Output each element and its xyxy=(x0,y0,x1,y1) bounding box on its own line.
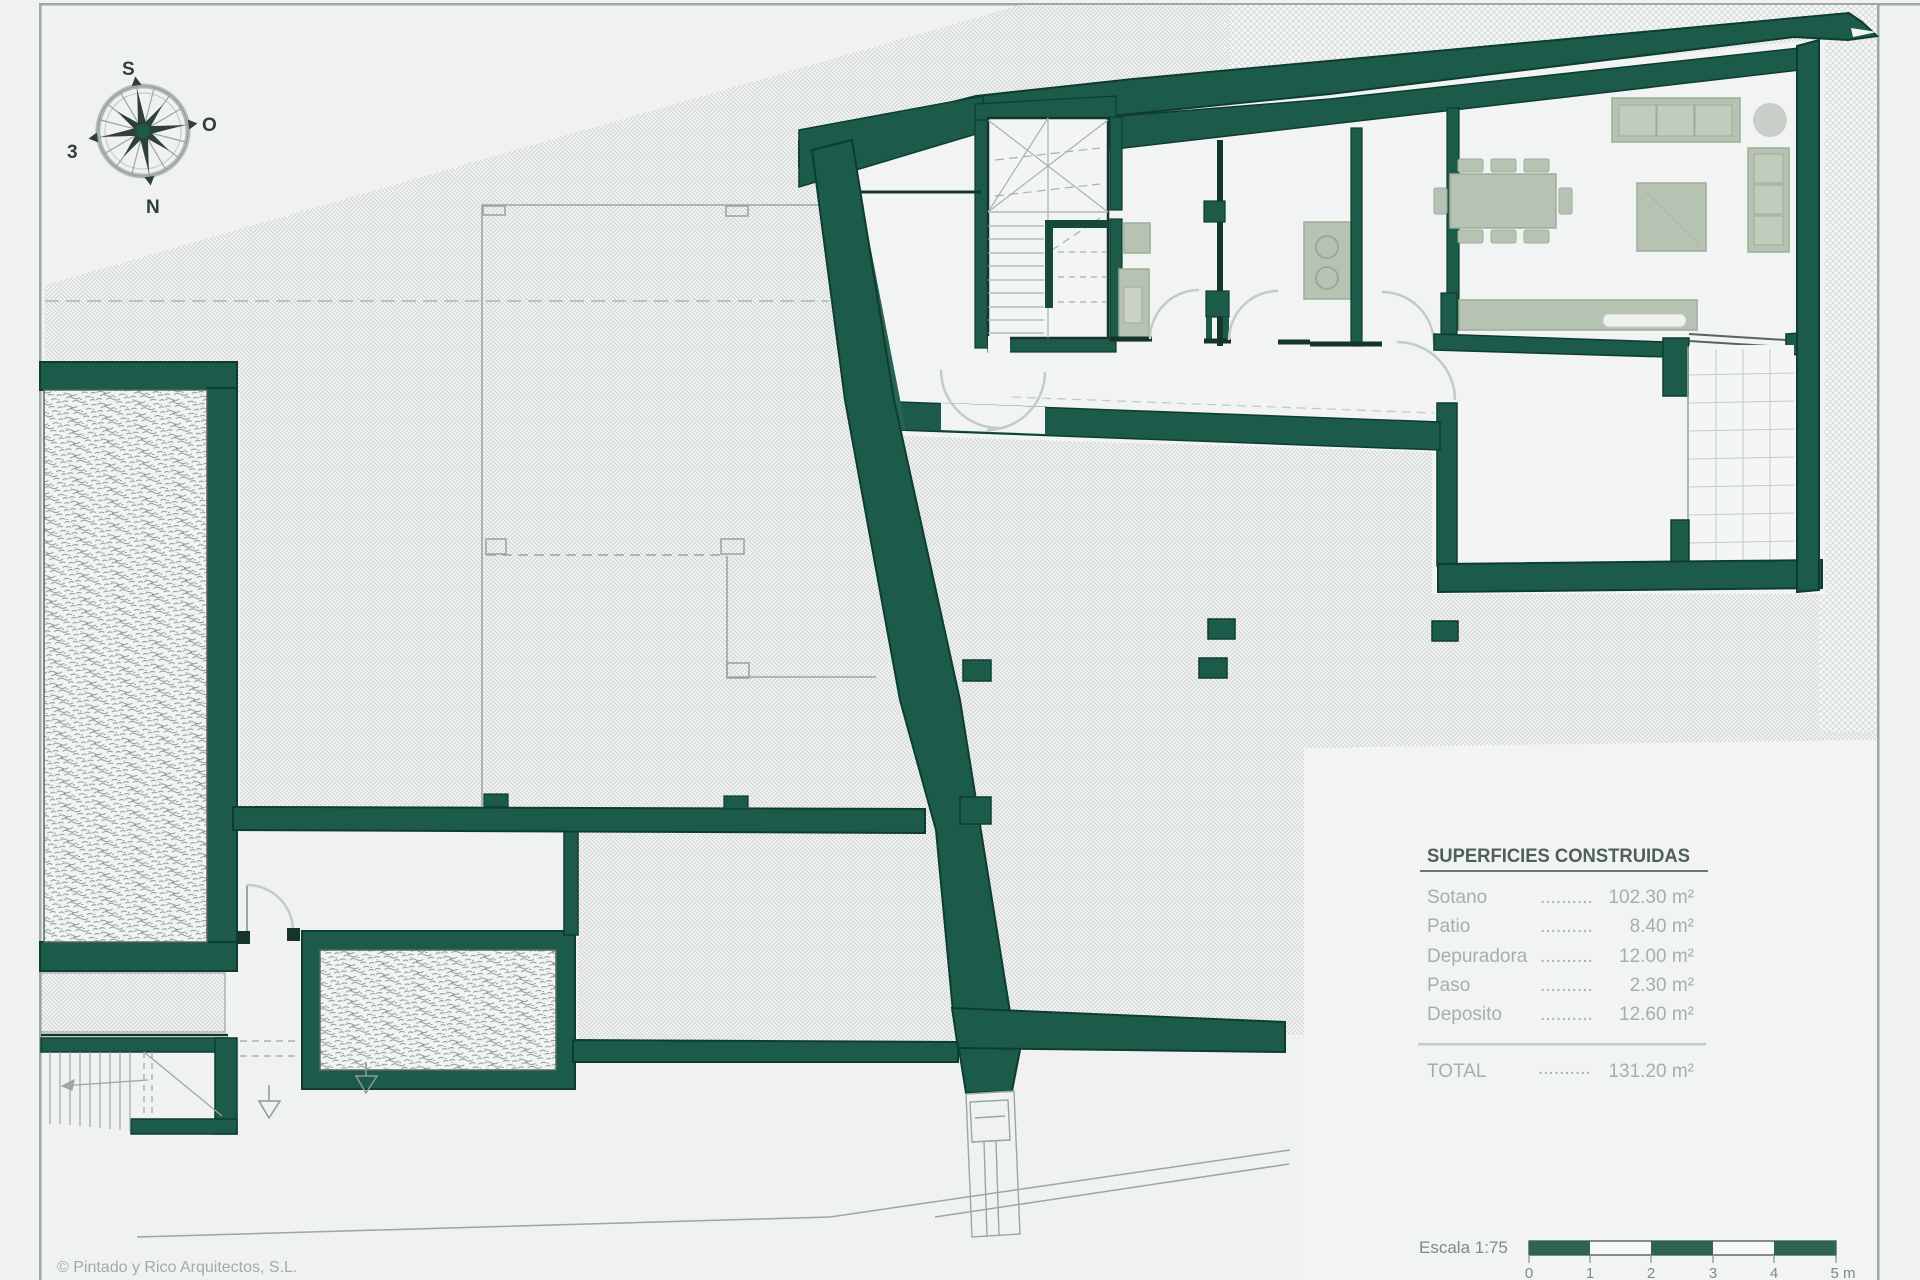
svg-text:Escala 1:75: Escala 1:75 xyxy=(1419,1238,1508,1257)
svg-text:12.60 m²: 12.60 m² xyxy=(1619,1004,1694,1025)
svg-text:Sotano: Sotano xyxy=(1427,887,1487,908)
svg-text:8.40 m²: 8.40 m² xyxy=(1630,916,1694,937)
svg-text:Patio: Patio xyxy=(1427,916,1470,937)
svg-text:3: 3 xyxy=(67,142,78,163)
svg-text:3: 3 xyxy=(1709,1265,1717,1280)
svg-text:2.30 m²: 2.30 m² xyxy=(1630,975,1694,996)
svg-text:Paso: Paso xyxy=(1427,975,1470,996)
svg-text:102.30 m²: 102.30 m² xyxy=(1608,887,1694,908)
svg-text:..........: .......... xyxy=(1540,1004,1593,1025)
svg-text:N: N xyxy=(146,197,160,218)
svg-text:Depuradora: Depuradora xyxy=(1427,946,1528,967)
svg-text:© Pintado y Rico Arquitectos,: © Pintado y Rico Arquitectos, S.L. xyxy=(57,1259,297,1276)
svg-text:Deposito: Deposito xyxy=(1427,1004,1502,1025)
svg-text:TOTAL: TOTAL xyxy=(1427,1061,1486,1082)
svg-text:5 m: 5 m xyxy=(1830,1265,1855,1280)
svg-text:SUPERFICIES CONSTRUIDAS: SUPERFICIES CONSTRUIDAS xyxy=(1427,846,1690,867)
svg-text:..........: .......... xyxy=(1540,887,1593,908)
svg-text:4: 4 xyxy=(1770,1265,1778,1280)
svg-text:..........: .......... xyxy=(1540,975,1593,996)
svg-text:131.20 m²: 131.20 m² xyxy=(1608,1061,1694,1082)
svg-text:1: 1 xyxy=(1586,1265,1594,1280)
svg-text:..........: .......... xyxy=(1540,946,1593,967)
svg-text:S: S xyxy=(122,59,135,80)
svg-text:O: O xyxy=(202,115,217,136)
svg-text:12.00 m²: 12.00 m² xyxy=(1619,946,1694,967)
svg-text:0: 0 xyxy=(1525,1265,1533,1280)
svg-text:..........: .......... xyxy=(1540,916,1593,937)
svg-text:2: 2 xyxy=(1647,1265,1655,1280)
svg-text:..........: .......... xyxy=(1538,1058,1591,1079)
